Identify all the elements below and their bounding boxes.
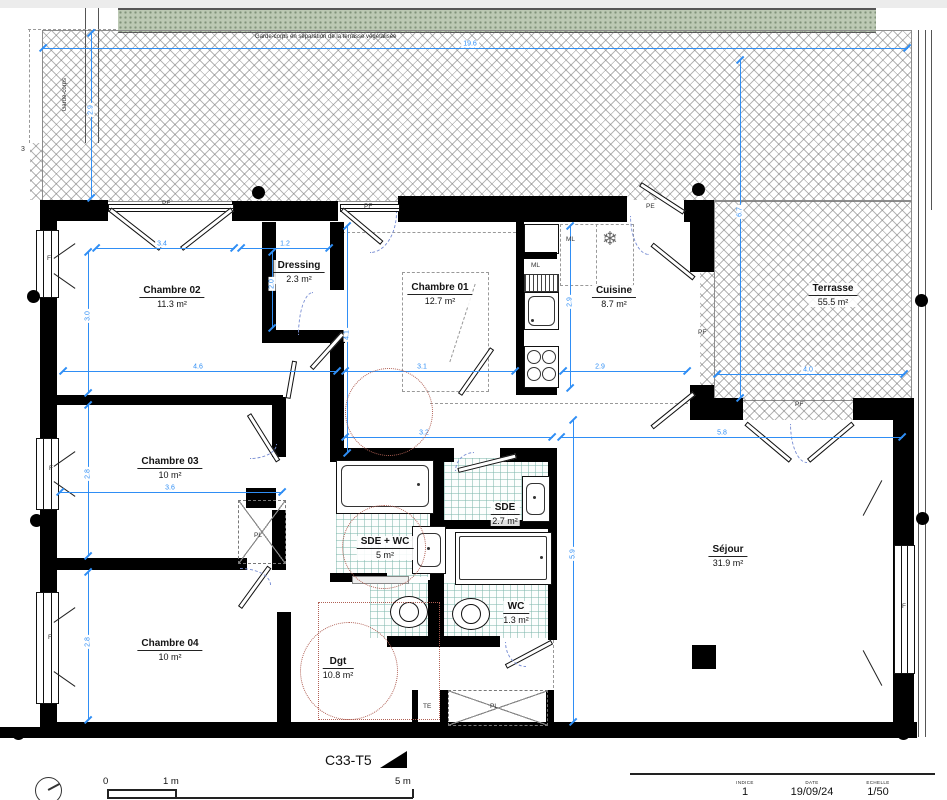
dim-sejour-w-label: 5.8 <box>715 430 729 437</box>
scale-zero: 0 <box>103 776 108 787</box>
sheet-code: C33-T5 <box>325 752 372 768</box>
burner-1 <box>527 350 541 364</box>
kitchen-cooktop <box>524 346 559 388</box>
wall-kitchen-column <box>516 222 524 390</box>
fridge-zone-dashed <box>560 224 634 286</box>
level-marker: 3 <box>21 146 25 153</box>
dim-ch02-win-label: 3.4 <box>155 241 169 248</box>
room-area-sejour: 31.9 m² <box>708 557 747 568</box>
casement-sejour <box>863 480 883 516</box>
arc-sejour-pf <box>790 424 807 463</box>
date-label: DATE <box>805 780 818 785</box>
te-wall-right <box>440 690 448 724</box>
scale-bar-top <box>107 789 175 791</box>
title-block-rule <box>630 773 935 775</box>
label-pl-ch03: PL <box>254 533 262 540</box>
room-area-terrasse: 55.5 m² <box>809 296 858 307</box>
room-area-dgt: 10.8 m² <box>323 669 354 680</box>
label-ml-box: ML <box>566 237 575 244</box>
garde-corps-left-label: Garde-corps <box>62 78 68 111</box>
label-pf-cuisine: PF <box>698 330 706 337</box>
arc-dressing <box>298 292 313 335</box>
dim-terrace-left-label: 2.9 <box>88 103 95 117</box>
kitchen-sink <box>524 292 559 330</box>
turning-circle-hall <box>345 368 433 456</box>
toilet-wc <box>452 598 490 630</box>
scale-tick-5 <box>412 789 414 798</box>
terrace-edge-dashed-right <box>911 85 912 200</box>
top-margin-band <box>0 0 947 8</box>
label-te: TE <box>423 704 431 711</box>
dim-ch02-w <box>62 371 338 372</box>
sejour-column <box>692 645 716 669</box>
room-area-wc: 1.3 m² <box>503 614 529 625</box>
label-pf-ch01: PF <box>364 204 372 211</box>
dim-ch03-w-label: 3.6 <box>163 485 177 492</box>
label-f-ch02: F <box>47 256 51 263</box>
terrace-edge-dashed-topleft-v <box>29 29 30 143</box>
shower-sde-handle <box>540 556 543 559</box>
wall-terrasse-bottom-right <box>853 398 893 420</box>
door-leaf-cuisine-pf-upper <box>650 243 695 281</box>
dim-terrace-right <box>740 60 741 398</box>
burner-3 <box>527 367 541 381</box>
room-label-chambre01: Chambre 01 12.7 m² <box>407 282 472 306</box>
dim-ch02-h-label: 3.0 <box>85 309 92 323</box>
room-label-chambre03: Chambre 03 10 m² <box>137 456 202 480</box>
room-label-sejour: Séjour 31.9 m² <box>708 544 747 568</box>
room-label-wc: WC 1.3 m² <box>503 601 529 625</box>
room-area-chambre04: 10 m² <box>137 651 202 662</box>
door-leaf-ch02-window-l <box>108 208 162 251</box>
indice-value: 1 <box>742 786 748 798</box>
terrace-hatch-top-band <box>42 30 912 202</box>
wall-ch04-right <box>277 612 291 722</box>
washbasin-sde-drain <box>533 496 536 499</box>
kitchen-dishwasher <box>524 274 559 292</box>
room-name-wc: WC <box>503 601 529 614</box>
door-leaf-sejour-pf-r <box>807 422 855 463</box>
arc-sde <box>455 452 474 471</box>
date-value: 19/09/24 <box>791 786 834 798</box>
label-f-ch04: F <box>48 635 52 642</box>
room-label-chambre02: Chambre 02 11.3 m² <box>139 285 204 309</box>
window-ch02 <box>36 230 59 298</box>
wall-terrasse-bottom-left <box>690 398 743 420</box>
kitchen-black-divider <box>524 252 557 259</box>
casement-sejour-b <box>863 650 883 686</box>
dim-sejour-w <box>560 437 903 438</box>
dim-sejour-h-label: 5.9 <box>570 547 577 561</box>
dim-cuisine-h-label: 2.9 <box>567 295 574 309</box>
dim-terrace-low-w-label: 4.0 <box>801 367 815 374</box>
washbasin-sde <box>522 476 550 522</box>
room-name-chambre03: Chambre 03 <box>137 456 202 469</box>
scale-one: 1 m <box>163 776 179 787</box>
room-label-dressing: Dressing 2.3 m² <box>274 260 325 284</box>
column-dot-left-2 <box>30 514 43 527</box>
wall-cuisine-terrasse-upper <box>690 200 714 272</box>
closet-pl-entry <box>448 690 548 726</box>
dim-ch03-h-label: 2.8 <box>85 467 92 481</box>
shower-sde <box>455 532 552 585</box>
garde-corps-rail-right-1 <box>918 30 919 737</box>
label-f-ch03: F <box>49 466 53 473</box>
dim-terrace-right-label: 6.7 <box>737 205 744 219</box>
sejour-open-boundary-dashed <box>430 403 688 404</box>
echelle-label: ECHELLE <box>866 780 889 785</box>
label-pl-entry: PL <box>490 704 498 711</box>
terrace-edge-dashed-topleft-h <box>28 29 116 30</box>
room-name-sde: SDE <box>491 502 520 515</box>
door-leaf-sejour-pf-l <box>744 422 792 463</box>
room-label-cuisine: Cuisine 8.7 m² <box>592 285 636 309</box>
window-ch04 <box>36 592 59 704</box>
bathtub-basin <box>341 465 429 507</box>
window-ch03 <box>36 438 59 510</box>
room-name-terrasse: Terrasse <box>809 283 858 296</box>
garde-corps-rail-right-2 <box>925 30 926 737</box>
label-pf-ch02: PF <box>162 201 170 208</box>
indice-label: INDICE <box>736 780 754 785</box>
wall-ch03-ch04-divider <box>57 558 247 570</box>
dim-dressing-w <box>240 248 330 249</box>
dim-terrace-low-w <box>716 374 905 375</box>
label-ml-column: ML <box>531 263 540 270</box>
kitchen-sink-drain <box>531 319 534 322</box>
room-area-chambre02: 11.3 m² <box>139 298 204 309</box>
echelle-value: 1/50 <box>867 786 888 798</box>
terrace-hatch-left-step <box>30 143 42 200</box>
dim-top-width <box>42 48 908 49</box>
room-label-sde: SDE 2.7 m² <box>491 502 520 526</box>
kitchen-box-top <box>524 224 559 254</box>
room-name-chambre01: Chambre 01 <box>407 282 472 295</box>
label-f-sejour: F <box>902 604 906 611</box>
column-dot-bottom-2 <box>897 727 910 740</box>
dim-ch02-w-label: 4.6 <box>191 364 205 371</box>
room-area-cuisine: 8.7 m² <box>592 298 636 309</box>
dim-sejour-h <box>573 420 574 722</box>
wall-top-thick <box>398 196 627 222</box>
room-area-dressing: 2.3 m² <box>274 273 325 284</box>
floor-plan: 19.6 2.9 6.7 3.4 1.2 2.0 3.0 4.1 2.9 4.6… <box>0 0 947 800</box>
bathtub-drain <box>417 483 420 486</box>
dim-cuisine-w <box>562 371 688 372</box>
room-label-terrasse: Terrasse 55.5 m² <box>809 283 858 307</box>
window-ch02-pf <box>108 204 234 212</box>
column-dot-top-1 <box>252 186 265 199</box>
garde-corps-note: Garde-corps en séparation de la terrasse… <box>255 34 396 40</box>
scale-tick-1 <box>175 789 177 798</box>
label-pe-entry: PE <box>646 204 655 211</box>
shower-sde-pan <box>459 536 547 580</box>
toilet-wc-bowl <box>461 604 481 624</box>
dim-ch01-w-label: 3.1 <box>415 364 429 371</box>
dim-ch02-win <box>95 248 235 249</box>
room-name-sdewc: SDE + WC <box>357 536 414 549</box>
scale-tick-0 <box>107 789 109 798</box>
dim-dressing-w-label: 1.2 <box>278 241 292 248</box>
burner-4 <box>542 367 556 381</box>
room-name-dgt: Dgt <box>323 656 354 669</box>
wall-top-b <box>232 201 338 221</box>
column-dot-top-2 <box>692 183 705 196</box>
washbasin-sdewc-drain <box>427 547 430 550</box>
room-name-cuisine: Cuisine <box>592 285 636 298</box>
dim-ch03-w <box>59 492 283 493</box>
washbasin-sde-bowl <box>526 483 545 515</box>
room-area-sdewc: 5 m² <box>357 549 414 560</box>
dim-ch04-h-label: 2.8 <box>85 635 92 649</box>
dim-top-width-label: 19.6 <box>461 41 479 48</box>
wall-ch01-left-upper <box>330 222 344 290</box>
label-pf-sejour: PF <box>795 402 803 409</box>
north-triangle-icon <box>380 751 407 768</box>
scale-bar-bottom <box>107 797 413 799</box>
closet-pl-ch03 <box>238 500 286 564</box>
room-name-sejour: Séjour <box>708 544 747 557</box>
column-dot-bottom-1 <box>12 727 25 740</box>
room-name-chambre02: Chambre 02 <box>139 285 204 298</box>
fridge-icon: ❄ <box>602 228 618 251</box>
door-leaf-ch02-window-r <box>180 208 234 251</box>
fridge-zone-divider <box>596 224 597 284</box>
arc-ch01-window <box>370 212 397 253</box>
wall-sde-top-a <box>444 448 454 462</box>
room-area-chambre01: 12.7 m² <box>407 295 472 306</box>
compass-icon <box>35 777 62 800</box>
column-dot-right-1 <box>915 294 928 307</box>
garde-corps-rail-right-3 <box>931 30 932 210</box>
burner-2 <box>542 350 556 364</box>
room-name-chambre04: Chambre 04 <box>137 638 202 651</box>
room-area-sde: 2.7 m² <box>491 515 520 526</box>
column-dot-left-1 <box>27 290 40 303</box>
room-label-chambre04: Chambre 04 10 m² <box>137 638 202 662</box>
room-label-dgt: Dgt 10.8 m² <box>323 656 354 680</box>
column-dot-right-2 <box>916 512 929 525</box>
room-label-sdewc: SDE + WC 5 m² <box>357 536 414 560</box>
dim-cuisine-w-label: 2.9 <box>593 364 607 371</box>
door-leaf-cuisine-pf-lower <box>650 392 695 430</box>
dim-ch01-h-label: 4.1 <box>344 328 351 342</box>
room-name-dressing: Dressing <box>274 260 325 273</box>
compass-needle <box>48 783 60 790</box>
door-leaf-ch02 <box>286 361 298 399</box>
room-area-chambre03: 10 m² <box>137 469 202 480</box>
scale-five: 5 m <box>395 776 411 787</box>
